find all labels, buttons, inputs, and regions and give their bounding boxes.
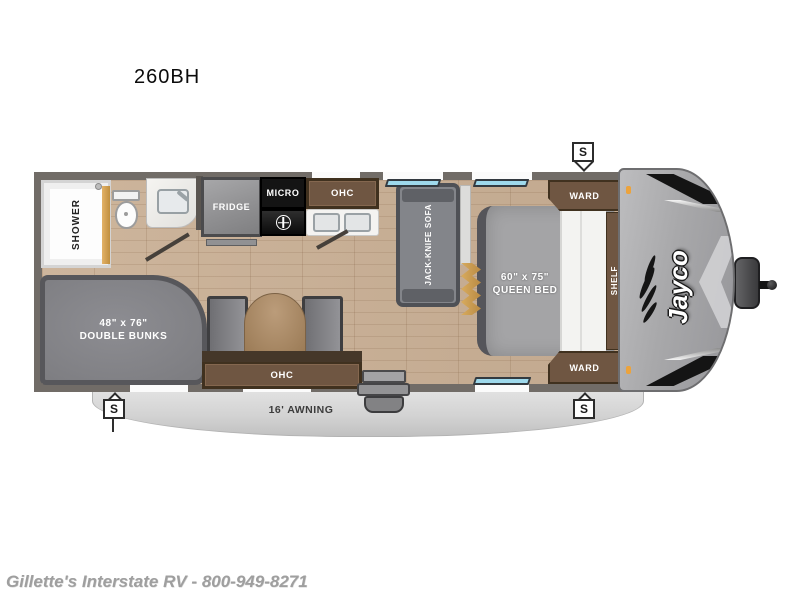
wall-gap xyxy=(130,384,188,392)
queen-bed-name: QUEEN BED xyxy=(460,284,590,297)
sofa-label: JACK-KNIFE SOFA xyxy=(424,204,433,285)
kitchen-ohc-label: OHC xyxy=(331,188,354,199)
queen-bed-size: 60" x 75" xyxy=(460,271,590,284)
window xyxy=(473,179,530,187)
speaker-letter: S xyxy=(572,142,594,162)
dinette-ohc-label: OHC xyxy=(271,370,294,381)
shower: SHOWER xyxy=(41,180,111,268)
toilet-tank xyxy=(112,190,140,201)
dinette-bench xyxy=(207,296,248,356)
shower-door-trim xyxy=(102,186,110,264)
sofa-armrest xyxy=(402,289,454,302)
speaker-marker: S xyxy=(572,142,594,172)
speaker-letter: S xyxy=(103,399,125,419)
micro-label: MICRO xyxy=(267,188,300,198)
speaker-marker: S xyxy=(573,391,595,421)
entry-step xyxy=(362,370,406,383)
ward-label: WARD xyxy=(570,363,600,373)
speaker-marker: S xyxy=(103,391,125,421)
wardrobe-bottom: WARD xyxy=(548,351,621,384)
marker-light xyxy=(626,186,631,194)
fridge-vent xyxy=(206,239,257,246)
brand-logo: Jayco xyxy=(661,225,695,349)
divider-panel xyxy=(460,185,471,265)
window xyxy=(385,179,442,187)
speaker-letter: S xyxy=(573,399,595,419)
double-bunks: 48" x 76" DOUBLE BUNKS xyxy=(40,275,207,385)
model-title: 260BH xyxy=(134,66,200,89)
bunks-size: 48" x 76" xyxy=(99,317,147,330)
dinette-base xyxy=(202,351,362,362)
queen-bed-label: 60" x 75" QUEEN BED xyxy=(460,271,590,297)
awning-label: 16' AWNING xyxy=(246,404,356,416)
dealer-logo-text: Gillette's Interstate RV - 800-949-8271 xyxy=(6,572,308,592)
dinette-table xyxy=(244,293,306,355)
fridge: FRIDGE xyxy=(201,177,262,237)
shower-head-icon xyxy=(95,183,102,190)
wall-gap xyxy=(475,384,529,392)
propane-tank-cover xyxy=(734,257,760,309)
kitchen-sink-bowl xyxy=(344,213,371,232)
hitch-ball xyxy=(767,280,777,290)
cap-graphic-swoosh xyxy=(646,356,735,386)
front-cap: Jayco xyxy=(618,168,735,392)
sofa-armrest xyxy=(402,189,454,202)
fridge-label: FRIDGE xyxy=(213,202,251,212)
wardrobe-top: WARD xyxy=(548,180,621,211)
chevron-icon xyxy=(461,302,481,315)
kitchen-overhead-cabinet: OHC xyxy=(306,178,379,209)
ward-label: WARD xyxy=(570,191,600,201)
entry-step xyxy=(364,396,404,413)
cap-graphic-swoosh xyxy=(646,174,735,204)
marker-light xyxy=(626,366,631,374)
shower-label: SHOWER xyxy=(71,199,82,250)
cap-graphic-chevron xyxy=(699,236,735,328)
floorplan-page: 260BH 16' AWNING SHOWER FRIDGE MICRO OHC xyxy=(0,0,800,600)
dinette-bench xyxy=(302,296,343,356)
entry-step xyxy=(357,383,410,396)
window xyxy=(473,377,532,385)
microwave: MICRO xyxy=(260,177,306,209)
burner-icon xyxy=(276,215,291,230)
bunks-name: DOUBLE BUNKS xyxy=(80,330,168,343)
dinette-overhead-cabinet: OHC xyxy=(202,361,362,389)
toilet-flush-icon xyxy=(124,212,128,216)
kitchen-sink-bowl xyxy=(313,213,340,232)
stove xyxy=(260,209,306,236)
bathroom-sink xyxy=(157,189,189,214)
